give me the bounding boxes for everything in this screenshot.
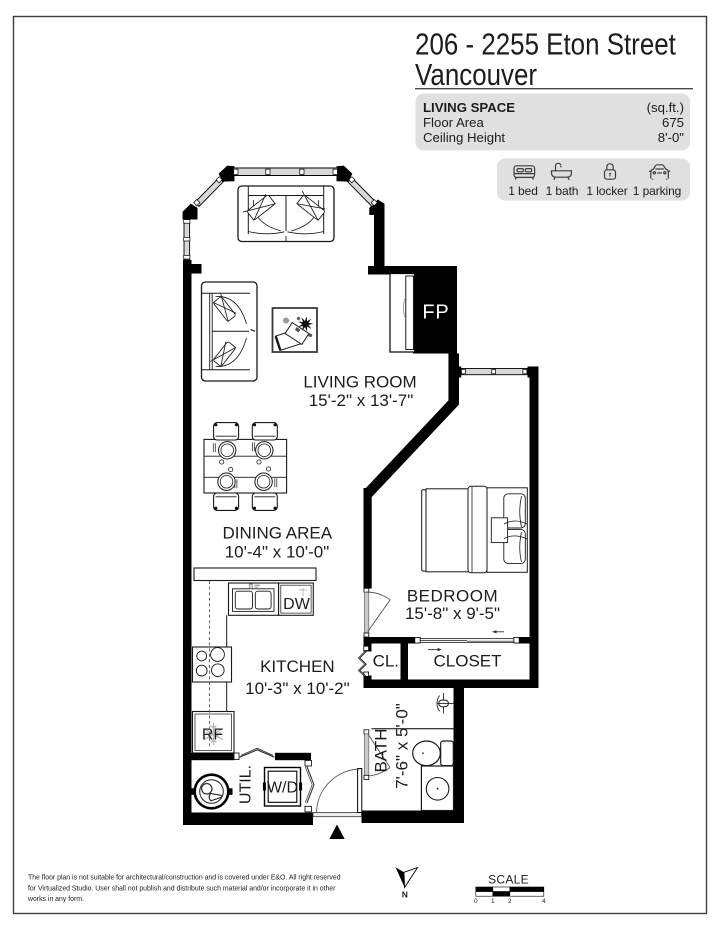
- svg-text:SCALE: SCALE: [488, 873, 529, 887]
- svg-text:15'-2" x 13'-7": 15'-2" x 13'-7": [309, 391, 414, 410]
- svg-text:LIVING ROOM: LIVING ROOM: [303, 372, 416, 391]
- svg-text:1 bath: 1 bath: [546, 184, 579, 198]
- svg-text:Ceiling Height: Ceiling Height: [423, 130, 505, 145]
- svg-text:CL.: CL.: [373, 652, 399, 671]
- svg-text:675: 675: [662, 115, 684, 130]
- svg-text:1 parking: 1 parking: [633, 184, 681, 198]
- svg-text:KITCHEN: KITCHEN: [260, 657, 335, 676]
- svg-text:1: 1: [491, 898, 495, 905]
- svg-text:Vancouver: Vancouver: [415, 57, 537, 91]
- svg-text:10'-4" x 10'-0": 10'-4" x 10'-0": [225, 543, 330, 562]
- svg-text:N: N: [402, 890, 408, 900]
- svg-text:2: 2: [508, 898, 512, 905]
- svg-text:RF: RF: [202, 727, 224, 744]
- svg-text:The floor plan is not suitable: The floor plan is not suitable for archi…: [28, 875, 341, 882]
- svg-text:4: 4: [542, 898, 546, 905]
- svg-text:1 bed: 1 bed: [508, 184, 538, 198]
- svg-text:BATH: BATH: [372, 728, 391, 772]
- svg-text:for Virtualized Studio. User s: for Virtualized Studio. User shall not p…: [28, 885, 336, 892]
- svg-text:DW: DW: [283, 596, 311, 613]
- svg-text:15'-8" x 9'-5": 15'-8" x 9'-5": [405, 604, 500, 623]
- svg-text:LIVING SPACE: LIVING SPACE: [423, 100, 515, 115]
- svg-text:DINING AREA: DINING AREA: [223, 523, 333, 542]
- svg-text:UTIL.: UTIL.: [238, 765, 255, 804]
- svg-text:W/D: W/D: [267, 780, 298, 797]
- svg-text:works in any form.: works in any form.: [27, 896, 84, 903]
- svg-text:10'-3" x 10'-2": 10'-3" x 10'-2": [245, 679, 350, 698]
- svg-text:7'-6" x 5'-0": 7'-6" x 5'-0": [393, 703, 412, 789]
- svg-text:BEDROOM: BEDROOM: [407, 586, 498, 605]
- svg-text:Floor Area: Floor Area: [423, 115, 485, 130]
- svg-text:0: 0: [474, 898, 478, 905]
- svg-text:206 - 2255 Eton Street: 206 - 2255 Eton Street: [415, 26, 676, 60]
- svg-text:CLOSET: CLOSET: [433, 652, 501, 671]
- svg-text:1 locker: 1 locker: [586, 184, 627, 198]
- svg-text:(sq.ft.): (sq.ft.): [647, 100, 684, 115]
- svg-text:FP: FP: [422, 302, 449, 324]
- svg-text:8'-0": 8'-0": [658, 130, 685, 145]
